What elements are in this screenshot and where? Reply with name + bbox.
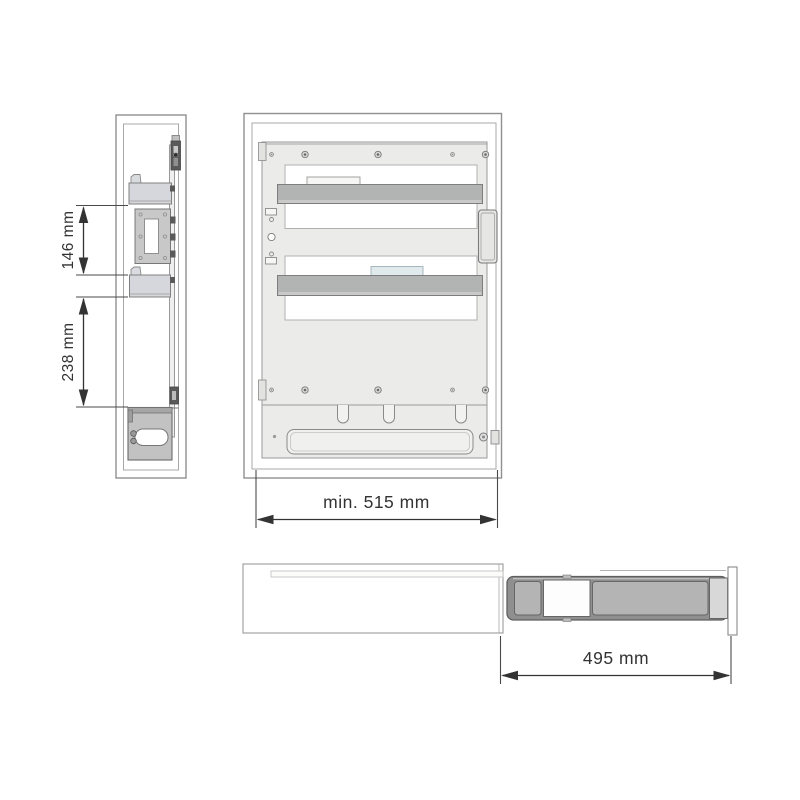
damper-handle [479,210,498,263]
bottom-tray [287,430,473,455]
technical-drawing-page: 146 mm 238 mm [0,0,800,800]
top-view-dimension: 495 mm [501,636,732,684]
drawer-front-panel [728,567,737,635]
plate-hook [170,251,176,258]
fixing-dot [273,435,276,438]
unit-compartment-large [593,582,709,616]
keyhole-slot [384,405,395,423]
upper-basket [278,165,483,229]
screw [375,387,381,393]
keyhole-slot [338,405,349,423]
divider-tab [563,575,571,579]
basket-label-plate [371,267,423,277]
screw [302,151,308,157]
bottom-unit [128,408,179,461]
dimension-label-515: min. 515 mm [323,492,430,512]
dimension-label-146: 146 mm [60,211,77,270]
screw [375,151,381,157]
front-view [244,114,502,479]
slide-rail [271,571,503,577]
lower-basket [278,256,483,320]
drawing-canvas: 146 mm 238 mm [0,0,800,800]
screw [302,387,308,393]
unit-end-cap [710,578,728,619]
lower-rail-catch [170,387,179,404]
divider-tab [563,618,571,622]
plate-hook [170,234,176,241]
unit-compartment-open [544,580,591,617]
dimension-label-495: 495 mm [583,648,649,668]
bar-highlight [279,200,482,203]
mounting-plate [135,209,176,264]
pullout-unit [507,575,728,622]
left-edge-bracket-top [259,143,267,161]
top-view [243,564,737,635]
adjustment-screw-center [482,436,485,439]
keyhole-slot [456,405,467,423]
left-edge-bracket-bottom [259,380,267,400]
bar-highlight [279,292,482,295]
screw [482,387,488,393]
front-view-dimension: min. 515 mm [256,470,498,528]
right-edge-catch [491,431,499,445]
screw [482,151,488,157]
plate-hook [170,217,176,224]
unit-compartment-small [515,582,542,616]
basket-clip [307,177,360,185]
dimension-label-238: 238 mm [60,323,77,382]
upper-rail-catch [171,136,181,171]
